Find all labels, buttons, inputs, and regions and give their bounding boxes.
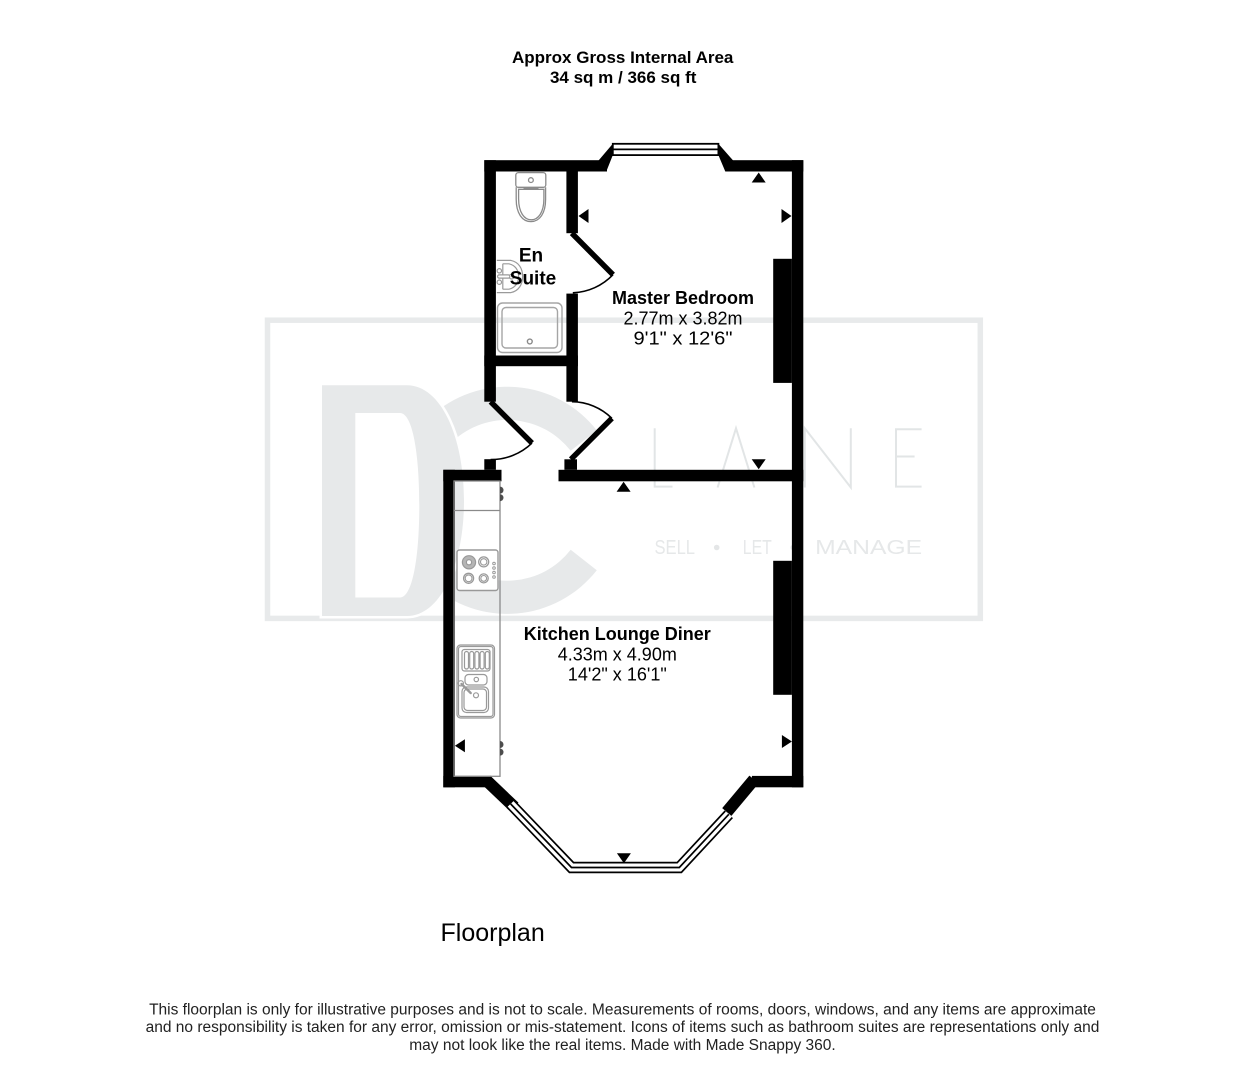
svg-text:En: En xyxy=(519,245,543,266)
svg-text:Master Bedroom: Master Bedroom xyxy=(612,288,754,308)
svg-text:34 sq m / 366 sq ft: 34 sq m / 366 sq ft xyxy=(550,68,697,87)
svg-text:Suite: Suite xyxy=(510,268,556,289)
svg-text:14'2" x 16'1": 14'2" x 16'1" xyxy=(568,665,667,685)
svg-text:MANAGE: MANAGE xyxy=(815,537,922,559)
svg-text:9'1" x 12'6": 9'1" x 12'6" xyxy=(634,329,733,349)
svg-text:This floorplan is only for ill: This floorplan is only for illustrative … xyxy=(149,1002,1096,1019)
svg-text:may not look like the real ite: may not look like the real items. Made w… xyxy=(409,1037,835,1054)
svg-text:2.77m x 3.82m: 2.77m x 3.82m xyxy=(623,308,742,328)
svg-text:LET: LET xyxy=(743,537,772,559)
svg-text:SELL: SELL xyxy=(655,537,696,559)
svg-text:Approx Gross Internal Area: Approx Gross Internal Area xyxy=(512,48,734,67)
svg-text:4.33m x 4.90m: 4.33m x 4.90m xyxy=(558,644,677,664)
svg-text:Kitchen Lounge Diner: Kitchen Lounge Diner xyxy=(524,624,711,644)
svg-text:Floorplan: Floorplan xyxy=(441,919,545,947)
svg-text:and no responsibility is taken: and no responsibility is taken for any e… xyxy=(146,1019,1100,1036)
